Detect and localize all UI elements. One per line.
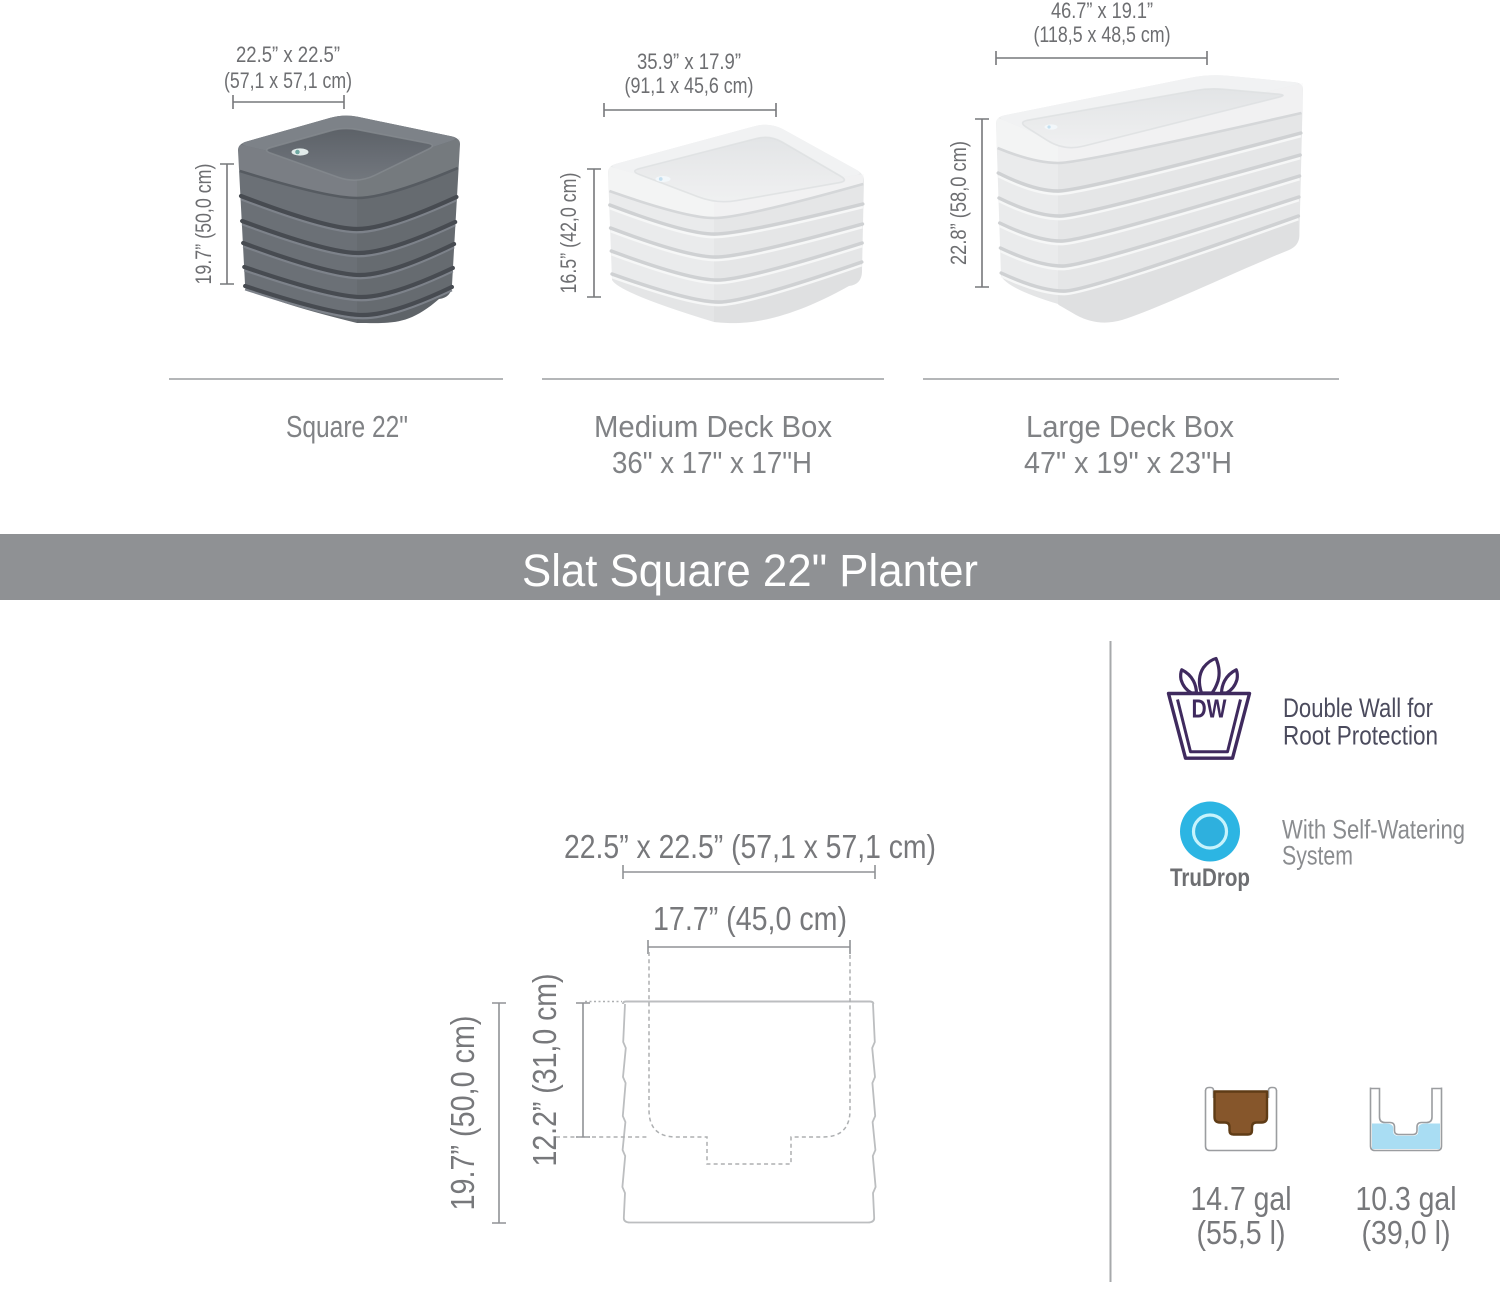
svg-text:19.7” (50,0 cm): 19.7” (50,0 cm) xyxy=(191,164,216,285)
svg-text:22.5” x 22.5”: 22.5” x 22.5” xyxy=(236,42,340,67)
svg-text:(39,0 l): (39,0 l) xyxy=(1362,1214,1451,1251)
svg-text:Large Deck Box: Large Deck Box xyxy=(1026,409,1234,444)
svg-text:19.7” (50,0 cm): 19.7” (50,0 cm) xyxy=(444,1016,481,1211)
svg-text:Square 22": Square 22" xyxy=(286,409,408,444)
svg-text:Medium Deck Box: Medium Deck Box xyxy=(594,409,832,444)
svg-text:TruDrop: TruDrop xyxy=(1170,864,1250,892)
svg-text:Root Protection: Root Protection xyxy=(1283,721,1438,751)
svg-text:35.9” x 17.9”: 35.9” x 17.9” xyxy=(637,49,741,74)
svg-text:14.7 gal: 14.7 gal xyxy=(1191,1180,1292,1217)
svg-text:(57,1 x 57,1 cm): (57,1 x 57,1 cm) xyxy=(224,68,352,93)
svg-text:(118,5 x 48,5 cm): (118,5 x 48,5 cm) xyxy=(1034,22,1171,47)
svg-text:47" x 19" x 23"H: 47" x 19" x 23"H xyxy=(1024,445,1232,480)
svg-text:10.3 gal: 10.3 gal xyxy=(1356,1180,1457,1217)
svg-text:22.8” (58,0 cm): 22.8” (58,0 cm) xyxy=(946,141,971,265)
svg-text:46.7” x 19.1”: 46.7” x 19.1” xyxy=(1051,0,1153,23)
svg-text:DW: DW xyxy=(1192,694,1227,724)
svg-text:22.5” x 22.5” (57,1 x 57,1 cm): 22.5” x 22.5” (57,1 x 57,1 cm) xyxy=(564,828,936,865)
svg-text:(55,5 l): (55,5 l) xyxy=(1197,1214,1286,1251)
svg-text:17.7” (45,0 cm): 17.7” (45,0 cm) xyxy=(653,900,847,937)
svg-text:System: System xyxy=(1282,841,1353,871)
svg-text:Double Wall for: Double Wall for xyxy=(1283,693,1433,723)
svg-text:Slat Square 22" Planter: Slat Square 22" Planter xyxy=(522,545,978,596)
svg-text:(91,1 x 45,6 cm): (91,1 x 45,6 cm) xyxy=(625,73,754,98)
svg-text:16.5” (42,0 cm): 16.5” (42,0 cm) xyxy=(556,173,581,294)
svg-text:36" x 17" x 17"H: 36" x 17" x 17"H xyxy=(612,445,812,480)
